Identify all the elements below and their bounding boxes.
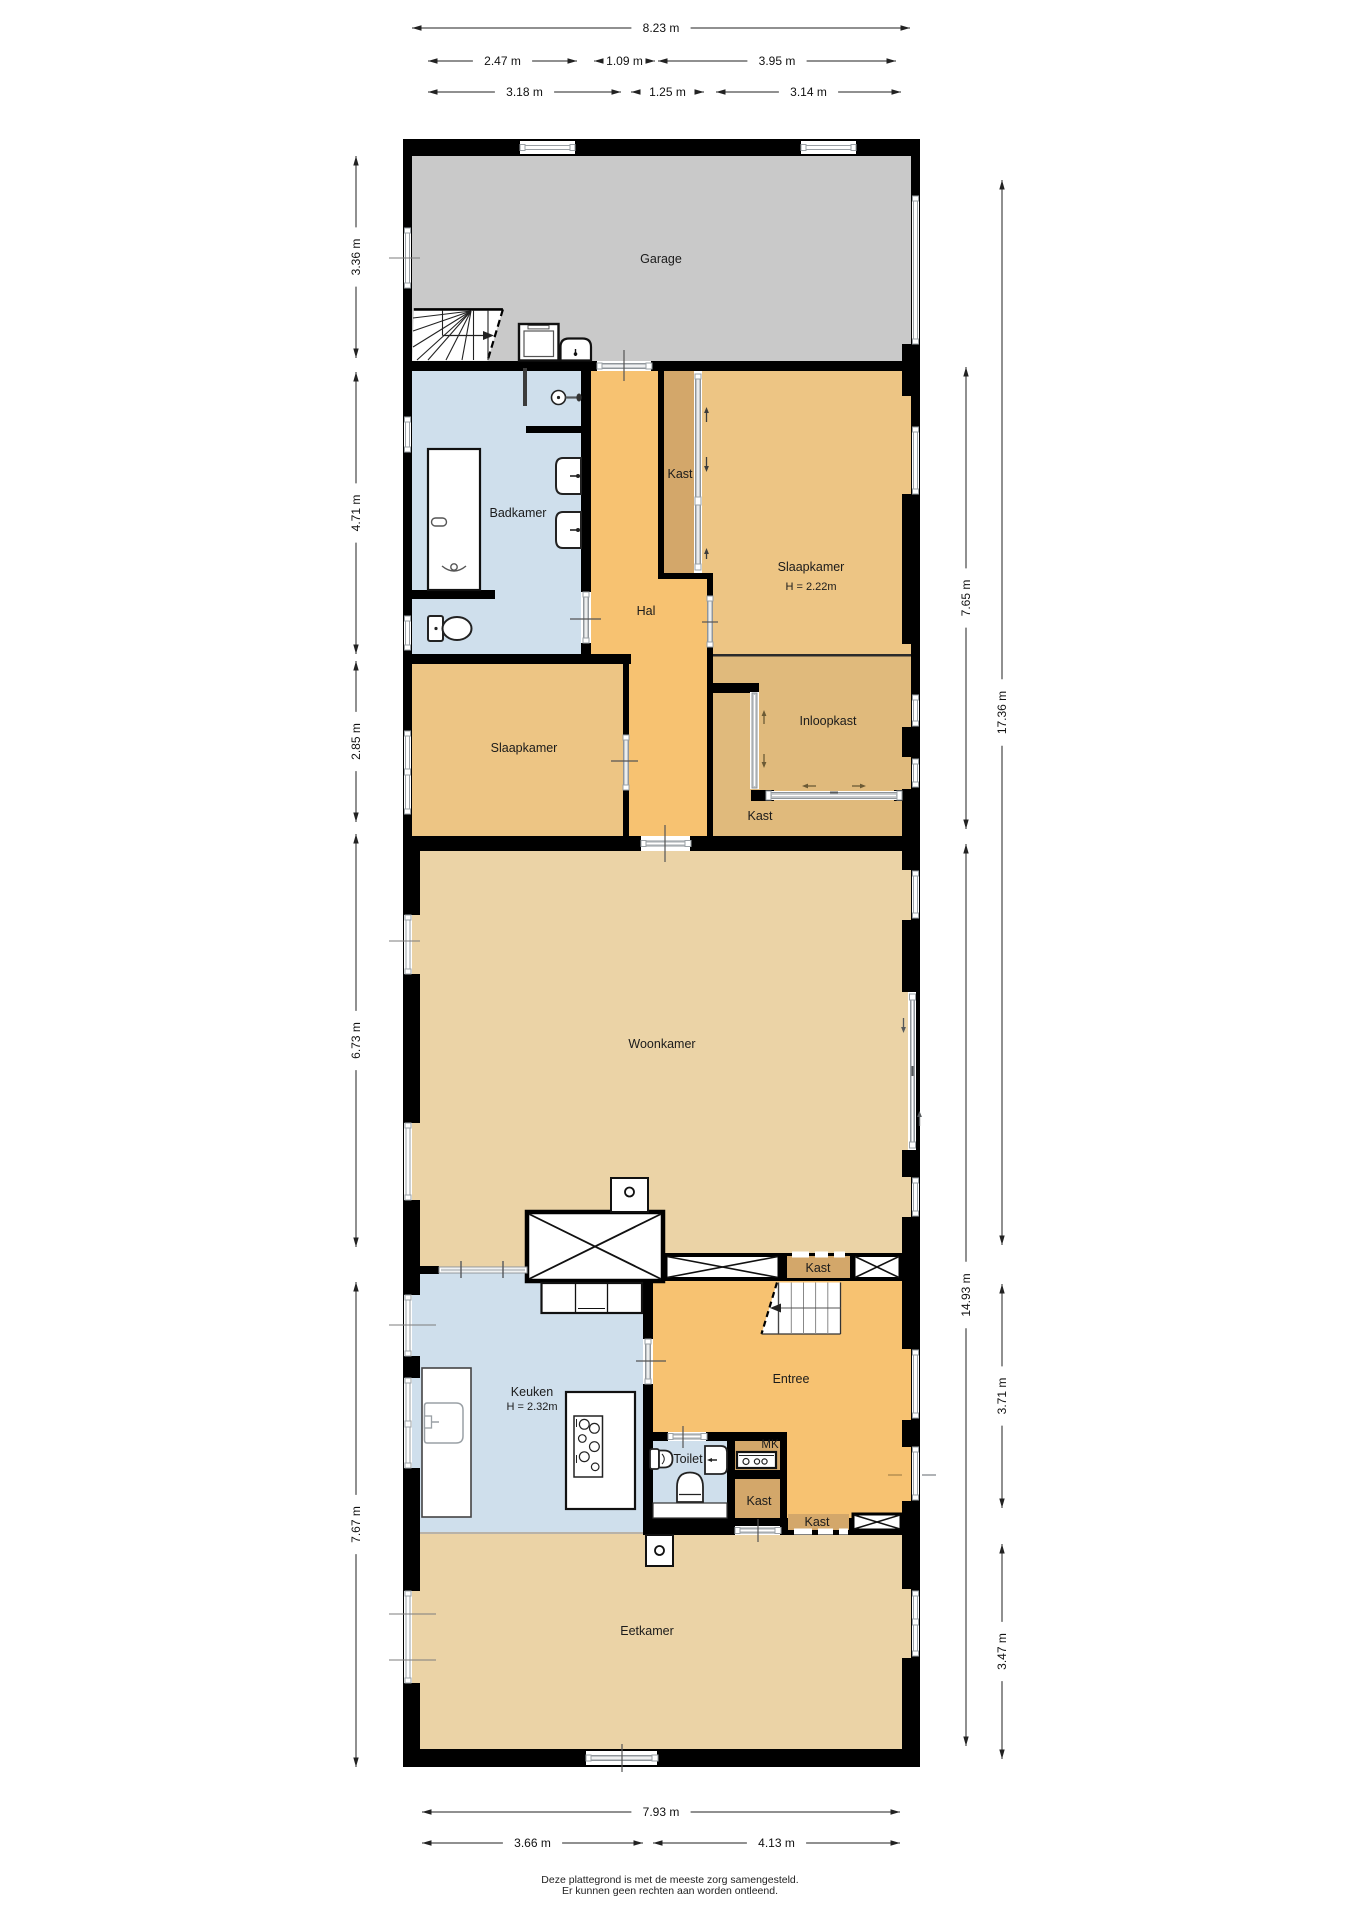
svg-text:Woonkamer: Woonkamer xyxy=(628,1037,695,1051)
svg-text:Hal: Hal xyxy=(637,604,656,618)
svg-text:Badkamer: Badkamer xyxy=(490,506,547,520)
svg-text:4.71 m: 4.71 m xyxy=(349,495,363,532)
svg-text:2.47 m: 2.47 m xyxy=(484,54,521,68)
svg-text:8.23 m: 8.23 m xyxy=(643,21,680,35)
svg-text:17.36 m: 17.36 m xyxy=(995,691,1009,734)
svg-text:Entree: Entree xyxy=(773,1372,810,1386)
svg-text:3.36 m: 3.36 m xyxy=(349,239,363,276)
svg-text:Slaapkamer: Slaapkamer xyxy=(778,560,845,574)
svg-text:3.18 m: 3.18 m xyxy=(506,85,543,99)
svg-text:7.65 m: 7.65 m xyxy=(959,580,973,617)
svg-text:7.93 m: 7.93 m xyxy=(643,1805,680,1819)
svg-text:2.85 m: 2.85 m xyxy=(349,723,363,760)
svg-text:Kast: Kast xyxy=(805,1261,831,1275)
svg-text:Er kunnen geen rechten aan wor: Er kunnen geen rechten aan worden ontlee… xyxy=(562,1885,778,1897)
svg-text:1.25 m: 1.25 m xyxy=(649,85,686,99)
svg-text:Eetkamer: Eetkamer xyxy=(620,1624,674,1638)
svg-text:H = 2.32m: H = 2.32m xyxy=(506,1401,557,1413)
svg-text:Inloopkast: Inloopkast xyxy=(800,714,858,728)
svg-text:3.14 m: 3.14 m xyxy=(790,85,827,99)
svg-text:14.93 m: 14.93 m xyxy=(959,1273,973,1316)
svg-text:MK: MK xyxy=(761,1439,779,1451)
svg-text:3.47 m: 3.47 m xyxy=(995,1633,1009,1670)
svg-text:Toilet: Toilet xyxy=(673,1452,703,1466)
svg-text:Kast: Kast xyxy=(746,1494,772,1508)
svg-text:3.71 m: 3.71 m xyxy=(995,1378,1009,1415)
svg-text:Kast: Kast xyxy=(804,1515,830,1529)
svg-text:Garage: Garage xyxy=(640,252,682,266)
svg-text:4.13 m: 4.13 m xyxy=(758,1836,795,1850)
svg-text:Kast: Kast xyxy=(747,809,773,823)
svg-text:H = 2.22m: H = 2.22m xyxy=(785,581,836,593)
svg-text:7.67 m: 7.67 m xyxy=(349,1506,363,1543)
svg-text:Kast: Kast xyxy=(667,467,693,481)
svg-text:3.66 m: 3.66 m xyxy=(514,1836,551,1850)
svg-text:6.73 m: 6.73 m xyxy=(349,1022,363,1059)
svg-text:Slaapkamer: Slaapkamer xyxy=(491,741,558,755)
svg-text:Keuken: Keuken xyxy=(511,1385,553,1399)
svg-text:3.95 m: 3.95 m xyxy=(759,54,796,68)
svg-text:1.09 m: 1.09 m xyxy=(606,54,643,68)
